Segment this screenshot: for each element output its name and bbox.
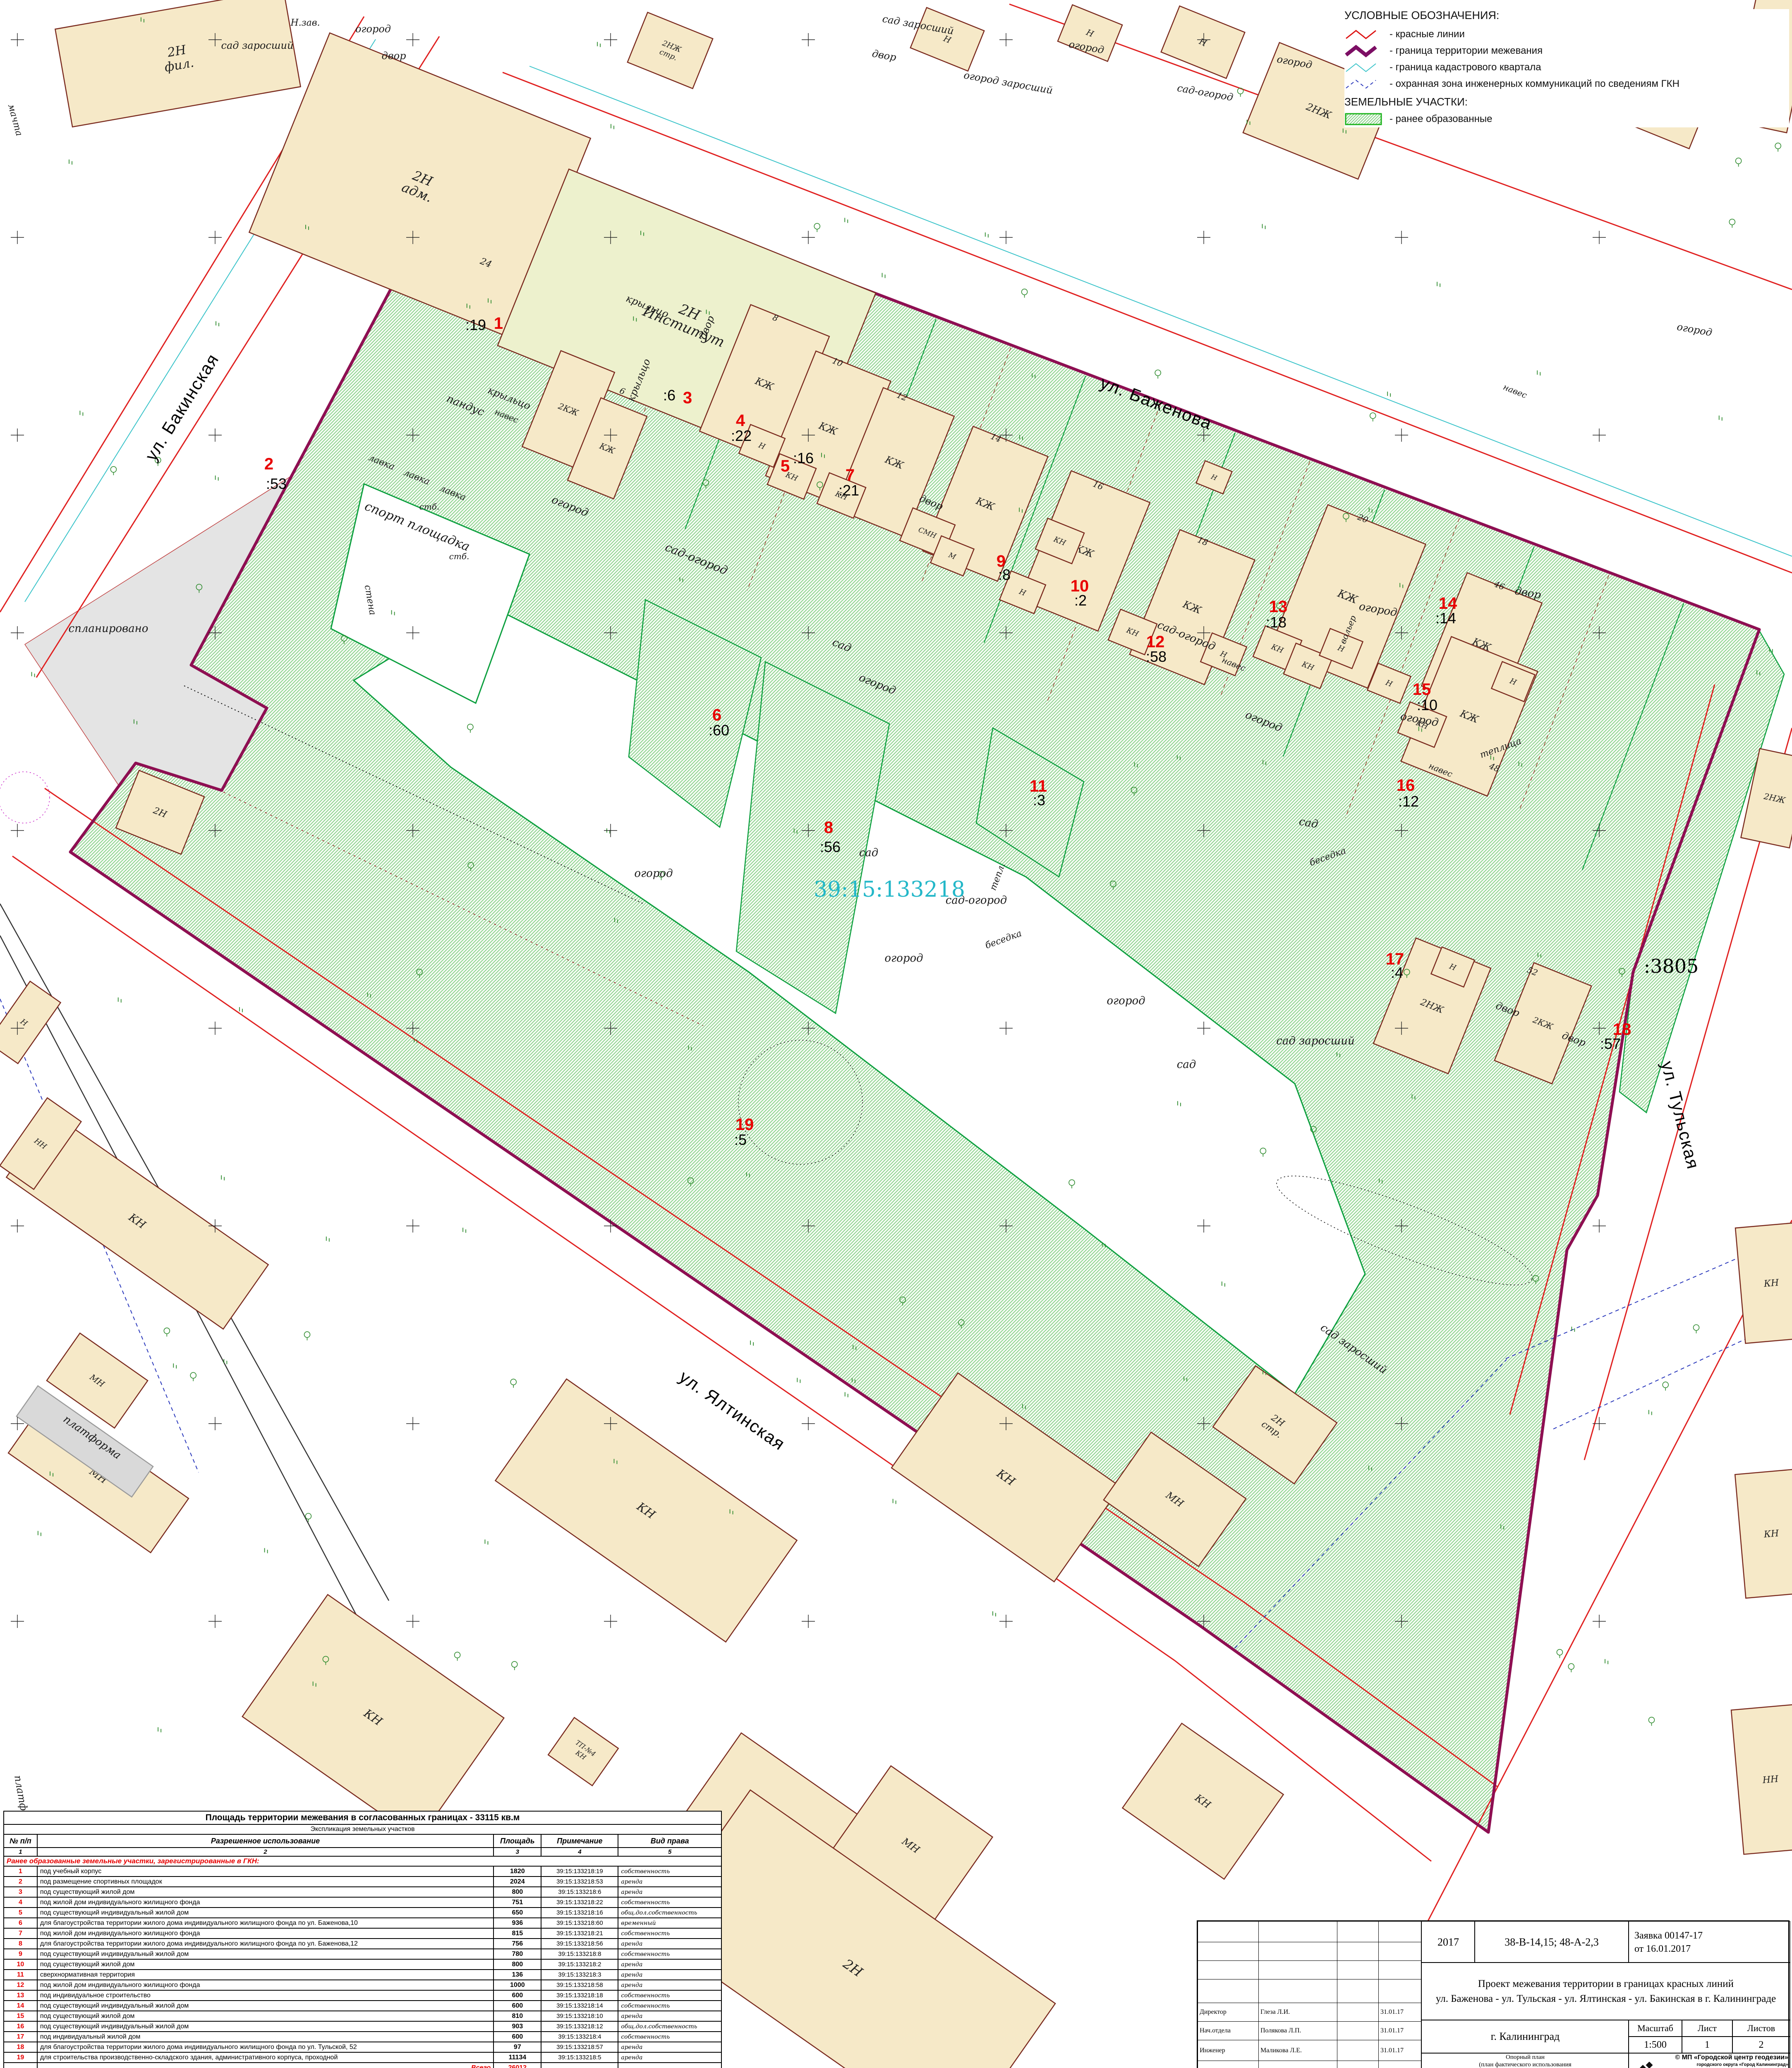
tree-icon [1694,1325,1699,1331]
grass-icon [463,1228,466,1233]
table-cell: 13 [4,1990,37,2001]
grid-cross [1395,428,1408,442]
table-row: 12под жилой дом индивидуального жилищног… [4,1980,721,1990]
grass-icon [985,233,988,237]
table-row: 7под жилой дом индивидуального жилищного… [4,1928,721,1939]
signature-cell: 31.01.17 [1378,2040,1421,2061]
table-cell: 39:15:133218:18 [541,1990,618,2001]
table-cell: 39:15:133218:53 [541,1877,618,1887]
parcel-cadastral-id: :21 [839,482,859,499]
grass-icon [221,1175,224,1180]
grass-icon [69,160,72,164]
table-cell: 4 [4,1897,37,1908]
tree-icon [1775,143,1781,149]
table-cell: 39:15:133218:57 [541,2042,618,2052]
signature-header-cell: Фамилия [1258,2061,1337,2068]
building: 2НЖстр. [628,12,713,89]
table-cell: 936 [494,1918,541,1928]
grass-icon [845,1393,848,1397]
building-footprint [0,981,60,1063]
table-cell: 15 [4,2011,37,2021]
table-cell: 39:15:133218:2 [541,1959,618,1970]
table-cell: 39:15:133218:14 [541,2001,618,2011]
table-cell: аренда [618,2052,721,2063]
table-cell: под индивидуальный жилой дом [37,2032,494,2042]
table-cell: аренда [618,1877,721,1887]
table-row: 6для благоустройства территории жилого д… [4,1918,721,1928]
table-cell: собственность [618,1990,721,2001]
table-cell: 10 [4,1959,37,1970]
dotted-outline [0,772,50,823]
table-cell: 39:15:133218:3 [541,1970,618,1980]
table-cell: 39:15:133218:16 [541,1908,618,1918]
hatch-swatch-icon [1344,112,1384,126]
titleblock-request: Заявка 00147-17 от 16.01.2017 [1628,1921,1790,1963]
table-cell: 2 [37,1848,494,1856]
grass-icon [750,1341,753,1345]
legend: УСЛОВНЫЕ ОБОЗНАЧЕНИЯ: - красные линии- г… [1344,9,1789,127]
table-cell: 11 [4,1970,37,1980]
table-row: Площадь территории межевания в согласова… [4,1811,721,1824]
signature-cell [1258,1960,1337,1979]
signature-cell: Директор [1198,2003,1259,2022]
signature-cell [1378,1979,1421,2003]
table-cell: под жилой дом индивидуального жилищного … [37,1980,494,1990]
project-line1: Проект межевания территории в границах к… [1478,1977,1734,1991]
grass-icon [1437,282,1440,287]
table-cell: Площадь [494,1834,541,1848]
grid-cross [604,33,617,46]
table-cell: 780 [494,1949,541,1959]
table-row: 16под существующий индивидуальный жилой … [4,2021,721,2032]
table-row: 5под существующий индивидуальный жилой д… [4,1908,721,1918]
signature-header-cell: Дата [1378,2061,1421,2068]
table-cell: 810 [494,2011,541,2021]
building: Н [910,7,984,71]
table-cell: под жилой дом индивидуального жилищного … [37,1928,494,1939]
legend-title: УСЛОВНЫЕ ОБОЗНАЧЕНИЯ: [1344,9,1789,22]
parcel-number: 13 [1269,598,1288,616]
grid-cross [11,231,24,244]
table-cell: 600 [494,2001,541,2011]
table-cell: 17 [4,2032,37,2042]
titleblock-project-title: Проект межевания территории в границах к… [1421,1962,1790,2020]
signature-cell [1337,1921,1379,1942]
area-label: сад [1177,1058,1196,1071]
grass-icon [326,1237,329,1241]
tree-icon [1370,413,1376,419]
table-cell: 5 [4,1908,37,1918]
legend-item: - красные линии [1344,26,1789,43]
sheets-label: Листов [1732,2020,1790,2037]
parcel-number: 3 [683,389,692,407]
tree-icon [1022,289,1028,295]
parcel-cadastral-id: :60 [709,722,729,739]
grid-cross [802,1417,815,1430]
sheet-value: 1 [1682,2036,1733,2054]
titleblock-city: г. Калининград [1421,2020,1629,2054]
legend-item-label: - граница территории межевания [1390,45,1543,57]
signature-cell [1337,1979,1379,2003]
table-cell: 1 [4,1866,37,1877]
signature-header-cell: Должность [1198,2061,1259,2068]
table-cell: под существующий жилой дом [37,1959,494,1970]
building: ТП-№4КН [548,1718,618,1786]
signature-cell: Глеза Л.И. [1258,2003,1337,2022]
area-label: огород заросший [963,69,1054,96]
grid-cross [604,1615,617,1628]
legend-item-label: - ранее образованные [1390,113,1493,125]
building: Н [1161,6,1245,79]
signature-cell [1198,1979,1259,2003]
grass-icon [1649,1410,1652,1415]
road-parcel-label: :3805 [1644,955,1699,977]
table-cell: собственность [618,2032,721,2042]
table-cell [541,2063,618,2068]
table-cell: для благоустройства территории жилого до… [37,1918,494,1928]
table-cell: Ранее образованные земельные участки, за… [4,1856,721,1866]
grass-icon [80,411,83,416]
building: КН [242,1594,504,1840]
grass-icon [32,672,35,677]
table-cell: № п/п [4,1834,37,1848]
area-label: Н.зав. [290,18,320,28]
area-label: стб. [449,551,470,561]
scale-label: Масштаб [1628,2020,1682,2037]
table-cell: под размещение спортивных площадок [37,1877,494,1887]
grid-cross [208,231,222,244]
table-cell: 18 [4,2042,37,2052]
table-cell [618,2063,721,2068]
grid-cross [802,33,815,46]
table-cell: 136 [494,1970,541,1980]
tree-icon [512,1661,517,1667]
street-label: ул. Тульская [1658,1059,1703,1172]
table-row: № п/пРазрешенное использованиеПлощадьПри… [4,1834,721,1848]
table-cell: 39:15:133218:60 [541,1918,618,1928]
building: НН [1731,1704,1792,1855]
signature-cell [1198,1942,1259,1961]
area-label: мачта [6,103,24,137]
table-cell: собственность [618,1897,721,1908]
table-cell: для благоустройства территории жилого до… [37,2042,494,2052]
grid-cross [1593,231,1606,244]
table-cell: Экспликация земельных участков [4,1824,721,1834]
legend-item: - граница территории межевания [1344,43,1789,59]
tree-icon [190,1372,196,1378]
parcel-number: 5 [781,457,790,475]
grass-icon [845,218,848,223]
grid-cross [802,231,815,244]
building: КН [1735,1469,1792,1598]
table-row: 14под существующий индивидуальный жилой … [4,2001,721,2011]
area-label: огород [884,952,923,965]
signature-cell [1198,1960,1259,1979]
signature-cell [1258,1942,1337,1961]
area-label: сад заросший [1276,1035,1354,1047]
tree-icon [1729,219,1735,225]
land-parcel-table: Площадь территории межевания в согласова… [3,1811,722,2068]
table-cell: аренда [618,1970,721,1980]
grid-cross [11,824,24,837]
signature-cell: Нач.отдела [1198,2021,1259,2040]
tree-icon [814,223,820,229]
grid-cross [208,428,222,442]
table-cell: 39:15:133218:4 [541,2032,618,2042]
area-label: сад-огород [1176,82,1234,103]
table-row: 17под индивидуальный жилой дом60039:15:1… [4,2032,721,2042]
building: Н [0,981,60,1063]
grass-icon [797,1378,800,1383]
table-cell: для строительства производственно-складс… [37,2052,494,2063]
parcel-cadastral-id: :16 [793,450,814,467]
table-cell: 1000 [494,1980,541,1990]
legend-item-label: - охранная зона инженерных коммуникаций … [1390,78,1679,90]
table-cell: 39:15:133218:8 [541,1949,618,1959]
parcel-cadastral-id: :19 [465,316,486,333]
table-cell: собственность [618,1928,721,1939]
grass-icon [485,1540,488,1544]
grass-icon [893,1499,896,1504]
table-cell: Всего [37,2063,494,2068]
parcel-cadastral-id: :5 [734,1131,747,1148]
grid-cross [999,33,1013,46]
table-cell: аренда [618,2042,721,2052]
table-cell: Вид права [618,1834,721,1848]
table-cell [4,2063,37,2068]
table-cell: аренда [618,1887,721,1897]
table-row: Экспликация земельных участков [4,1824,721,1834]
table-cell: под существующий индивидуальный жилой до… [37,1908,494,1918]
signature-cell [1337,2003,1379,2022]
tree-icon [1557,1649,1562,1655]
table-cell: 756 [494,1939,541,1949]
table-cell: 3 [494,1848,541,1856]
grass-icon [216,321,219,326]
tree-icon [1736,158,1742,164]
table-cell: 751 [494,1897,541,1908]
grid-cross [208,1022,222,1035]
table-row: 15под существующий жилой дом81039:15:133… [4,2011,721,2021]
table-cell: для благоустройства территории жилого до… [37,1939,494,1949]
legend-item: - граница кадастрового квартала [1344,59,1789,76]
table-cell: 600 [494,1990,541,2001]
parcel-cadastral-id: :2 [1074,592,1087,609]
building-footprint [1731,1704,1792,1855]
table-cell: 26012 [494,2063,541,2068]
table-cell: под существующий индивидуальный жилой до… [37,2021,494,2032]
table-cell: 1820 [494,1866,541,1877]
parcel-cadastral-id: :12 [1398,793,1419,810]
grid-cross [208,1417,222,1430]
table-row: 11сверхнормативная территория13639:15:13… [4,1970,721,1980]
grass-icon [118,998,121,1002]
table-cell: 39:15:133218:5 [541,2052,618,2063]
sheets-value: 2 [1732,2036,1790,2054]
grass-icon [240,1008,242,1012]
titleblock-year: 2017 [1421,1921,1475,1963]
table-cell: собственность [618,1949,721,1959]
tree-icon [1155,370,1161,376]
table-cell: под существующий индивидуальный жилой до… [37,2001,494,2011]
table-row: 19для строительства производственно-скла… [4,2052,721,2063]
request-line2: от 16.01.2017 [1634,1942,1790,1956]
grid-cross [11,428,24,442]
titleblock-sheet-code: 38-В-14,15; 48-А-2,3 [1474,1921,1629,1963]
building: КН [1122,1723,1283,1879]
tree-icon [1568,1663,1574,1669]
table-row: 18для благоустройства территории жилого … [4,2042,721,2052]
signature-cell [1378,1921,1421,1942]
grid-cross [406,1615,419,1628]
legend-section-parcels: ЗЕМЕЛЬНЫЕ УЧАСТКИ: [1344,96,1789,108]
grass-icon [1537,371,1540,375]
signature-cell [1337,1960,1379,1979]
table-cell: 39:15:133218:12 [541,2021,618,2032]
grid-cross [802,1615,815,1628]
table-cell: 19 [4,2052,37,2063]
table-cell: 16 [4,2021,37,2032]
parcel-cadastral-id: :22 [731,427,752,444]
tree-icon [304,1332,310,1338]
area-label: навес [1502,382,1528,400]
table-cell: под индивидуальное строительство [37,1990,494,2001]
grid-cross [1593,1417,1606,1430]
cadastral-quarter-label: 39:15:133218 [814,877,965,902]
table-cell: общ.дол.собственность [618,2021,721,2032]
grass-icon [1605,1659,1608,1664]
parcel-cadastral-id: :14 [1435,610,1456,627]
table-cell: 39:15:133218:22 [541,1897,618,1908]
parcel-cadastral-id: :4 [1391,964,1403,981]
table-row: 10под существующий жилой дом80039:15:133… [4,1959,721,1970]
street-label: ул. Ялтинская [676,1367,789,1454]
legend-item: - охранная зона инженерных коммуникаций … [1344,76,1789,92]
org-line1: © МП «Городской центр геодезии» [1629,2054,1788,2061]
table-cell: 39:15:133218:19 [541,1866,618,1877]
table-cell: 4 [541,1848,618,1856]
table-cell: 9 [4,1949,37,1959]
area-label: огород [1107,995,1145,1007]
table-cell: 5 [618,1848,721,1856]
grid-cross [11,1615,24,1628]
parcel-number: 15 [1413,680,1431,699]
table-row: Всего26012 [4,2063,721,2068]
area-label: сад заросший [221,40,294,51]
table-cell: под существующий индивидуальный жилой до… [37,1949,494,1959]
signature-cell [1337,2040,1379,2061]
table-cell: 600 [494,2032,541,2042]
tree-icon [305,1513,311,1519]
zigzag-path [1346,31,1376,38]
grass-icon [993,1611,996,1616]
area-label: стб. [419,502,440,512]
project-line2: ул. Баженова - ул. Тульская - ул. Ялтинс… [1436,1991,1776,2006]
area-label: огород [355,23,391,35]
grid-cross [1197,231,1210,244]
parcel-cadastral-id: :8 [998,566,1011,583]
table-cell: 815 [494,1928,541,1939]
table-cell: собственность [618,2001,721,2011]
table-cell: 1 [4,1848,37,1856]
table-row: 9под существующий индивидуальный жилой д… [4,1949,721,1959]
table-cell: сверхнормативная территория [37,1970,494,1980]
table-cell: 11134 [494,2052,541,2063]
grid-cross [208,1615,222,1628]
building-label: КН [1763,1528,1780,1540]
grass-icon [216,476,218,480]
table-cell: под существующий жилой дом [37,2011,494,2021]
geocentr-logo: Геоцентр [1632,2062,1661,2068]
grass-icon [882,273,885,278]
table-cell: Разрешенное использование [37,1834,494,1848]
table-row: 4под жилой дом индивидуального жилищного… [4,1897,721,1908]
table-cell: аренда [618,1939,721,1949]
grid-cross [406,1219,419,1233]
grass-icon [1387,392,1390,397]
grass-icon [38,1531,41,1536]
parcel-number: 16 [1397,776,1415,795]
table-cell: 3 [4,1887,37,1897]
parcel-cadastral-id: :57 [1600,1035,1621,1052]
grid-cross [11,33,24,46]
signature-header-cell: Подпись [1337,2061,1379,2068]
table-cell: аренда [618,2011,721,2021]
org-stamp: © МП «Городской центр геодезии» городско… [1628,2053,1790,2068]
legend-item-parcels: - ранее образованные [1344,111,1789,127]
area-label: огород [634,867,673,880]
table-cell: собственность [618,1866,721,1877]
grid-cross [999,1615,1013,1628]
table-cell: 8 [4,1939,37,1949]
zigzag-line-icon [1344,60,1384,74]
table-cell: 903 [494,2021,541,2032]
table-cell: 39:15:133218:56 [541,1939,618,1949]
tree-icon [510,1379,516,1385]
grid-cross [1593,428,1606,442]
table-cell: общ.дол.собственность [618,1908,721,1918]
tree-icon [1649,1717,1655,1723]
table-cell: 7 [4,1928,37,1939]
signature-cell: Полякова Л.П. [1258,2021,1337,2040]
grid-cross [11,1219,24,1233]
table-row: 3под существующий жилой дом80039:15:1332… [4,1887,721,1897]
grid-cross [406,1417,419,1430]
building-label: КН [1763,1278,1780,1289]
scale-value: 1:500 [1628,2036,1682,2054]
table-row: 2под размещение спортивных площадок20243… [4,1877,721,1887]
table-cell: под жилой дом индивидуального жилищного … [37,1897,494,1908]
parcel-number: 1 [494,314,503,333]
title-block: ДиректорГлеза Л.И.31.01.17Нач.отделаПоля… [1197,1920,1790,2068]
signature-cell: 31.01.17 [1378,2021,1421,2040]
table-row: Ранее образованные земельные участки, за… [4,1856,721,1866]
table-row: 1под учебный корпус182039:15:133218:19со… [4,1866,721,1877]
area-label: сад [859,847,879,859]
document-name: Опорный план (план фактического использо… [1421,2053,1629,2068]
grid-cross [1395,231,1408,244]
zigzag-path [1346,64,1376,72]
tree-icon [455,1652,460,1658]
geocentr-logo-icon [1639,2062,1654,2068]
table-cell: 39:15:133218:10 [541,2011,618,2021]
area-label: огород [1676,321,1713,339]
cadastral-plan-page: 2Нфил.2Надм.2НЖстр.ННН2НЖН2НЖ2НЖ2НИнстит… [0,0,1792,2068]
signature-cell [1378,1942,1421,1961]
signature-cell [1337,1942,1379,1961]
grass-icon [1719,416,1722,420]
parcel-cadastral-id: :6 [663,387,676,404]
